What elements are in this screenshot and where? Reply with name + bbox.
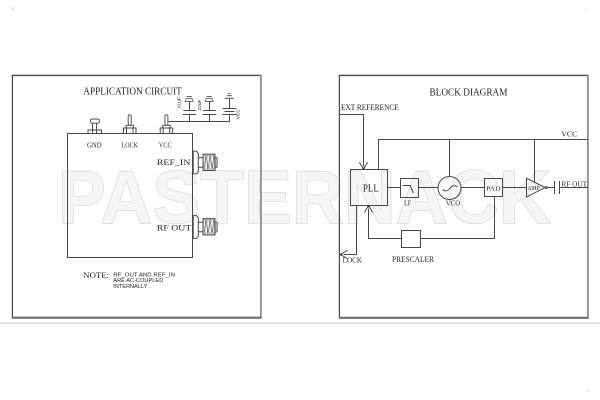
svg-text:LOCK: LOCK bbox=[122, 141, 139, 150]
svg-text:VCO: VCO bbox=[446, 199, 460, 207]
svg-text:APPLICATION CIRCUIT: APPLICATION CIRCUIT bbox=[83, 86, 182, 98]
svg-text:PASTERNACK: PASTERNACK bbox=[58, 155, 551, 239]
svg-text:.01uF: .01uF bbox=[177, 97, 183, 109]
svg-text:VCC: VCC bbox=[159, 141, 172, 150]
svg-text:AMP: AMP bbox=[528, 186, 540, 192]
svg-text:NOTE:: NOTE: bbox=[83, 270, 109, 280]
svg-text:LOCK: LOCK bbox=[343, 255, 363, 264]
svg-text:GND: GND bbox=[87, 141, 102, 150]
svg-text:VCC: VCC bbox=[236, 109, 242, 120]
svg-text:PLL: PLL bbox=[363, 183, 379, 194]
svg-text:VCC: VCC bbox=[561, 130, 577, 139]
svg-text:BLOCK DIAGRAM: BLOCK DIAGRAM bbox=[430, 87, 508, 99]
svg-text:PAD: PAD bbox=[486, 185, 501, 192]
svg-text:LF: LF bbox=[404, 199, 411, 207]
svg-text:RF OUT: RF OUT bbox=[157, 223, 192, 232]
svg-text:EXT REFERENCE: EXT REFERENCE bbox=[341, 103, 399, 112]
svg-text:PRESCALER: PRESCALER bbox=[392, 255, 435, 264]
svg-text:REF_IN: REF_IN bbox=[157, 158, 191, 167]
svg-text:INTERNALLY: INTERNALLY bbox=[113, 284, 147, 290]
svg-text:22uF: 22uF bbox=[197, 99, 203, 110]
svg-text:RF OUT: RF OUT bbox=[562, 179, 588, 188]
